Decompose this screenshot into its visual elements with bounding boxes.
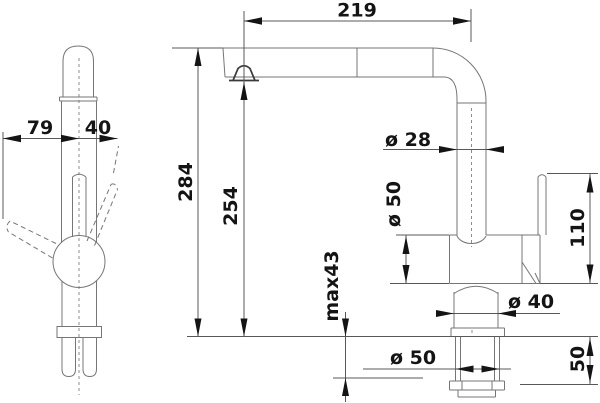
dim-label-body-diameter: ø 50 (383, 181, 405, 227)
arrowhead (456, 366, 474, 373)
spout-horizontal-tube (223, 48, 445, 77)
riser-centerline (472, 108, 473, 337)
front-collar-ring (60, 97, 98, 101)
arrowhead (195, 48, 202, 66)
drawing-canvas: 79 40 219 284 254 (0, 0, 600, 403)
dim-label-lever-height: 110 (567, 208, 589, 248)
arrowhead (439, 146, 457, 153)
neck-and-dome (454, 286, 498, 328)
front-spout-head (63, 46, 94, 97)
arrowhead (453, 17, 471, 24)
dim-50-body-lines (390, 235, 449, 284)
front-view-dimensions: 79 40 (3, 117, 118, 219)
side-lever-rod (538, 175, 546, 235)
dim-label-counter-thickness: max43 (321, 250, 343, 321)
faucet-technical-drawing: 79 40 219 284 254 (0, 0, 600, 403)
mounting-nut (450, 381, 505, 390)
arrowhead (403, 236, 410, 254)
dim-label-under-counter: 50 (567, 346, 589, 372)
dim-label-reach-left: 79 (27, 117, 53, 139)
arrowhead (486, 146, 504, 153)
arrowhead (61, 135, 79, 142)
dim-label-spout-diameter: ø 28 (385, 129, 431, 151)
arrowhead (244, 17, 262, 24)
arrowhead (342, 378, 349, 396)
dim-label-shank-diameter: ø 50 (390, 347, 436, 369)
arrowhead (241, 319, 248, 337)
arrowhead (587, 175, 594, 193)
arrowhead (3, 135, 21, 142)
dim-label-reach-right: 40 (85, 117, 111, 139)
spout-bend (433, 48, 486, 103)
dim-label-neck-diameter: ø 40 (508, 291, 554, 313)
arrowhead (587, 265, 594, 283)
front-view (7, 46, 119, 395)
arrowhead (482, 366, 500, 373)
nut-washer (458, 390, 496, 397)
lever-raised-position (87, 146, 119, 246)
front-dim-line (3, 132, 118, 219)
mounting-flange (451, 328, 505, 337)
threaded-shank (456, 337, 500, 382)
arrowhead (241, 82, 248, 100)
dim-label-overall-height: 284 (175, 162, 197, 202)
arrowhead (342, 319, 349, 337)
dim-label-outlet-height: 254 (220, 186, 242, 226)
arrowhead (403, 265, 410, 283)
arrowhead (195, 319, 202, 337)
ball-joint (53, 236, 105, 288)
arrowhead (436, 310, 454, 317)
lever-lowered-position (7, 221, 56, 258)
dim-label-spout-reach: 219 (337, 0, 377, 22)
side-view-dimensions: 219 284 254 ø 28 ø 50 110 ø 40 (172, 0, 598, 402)
